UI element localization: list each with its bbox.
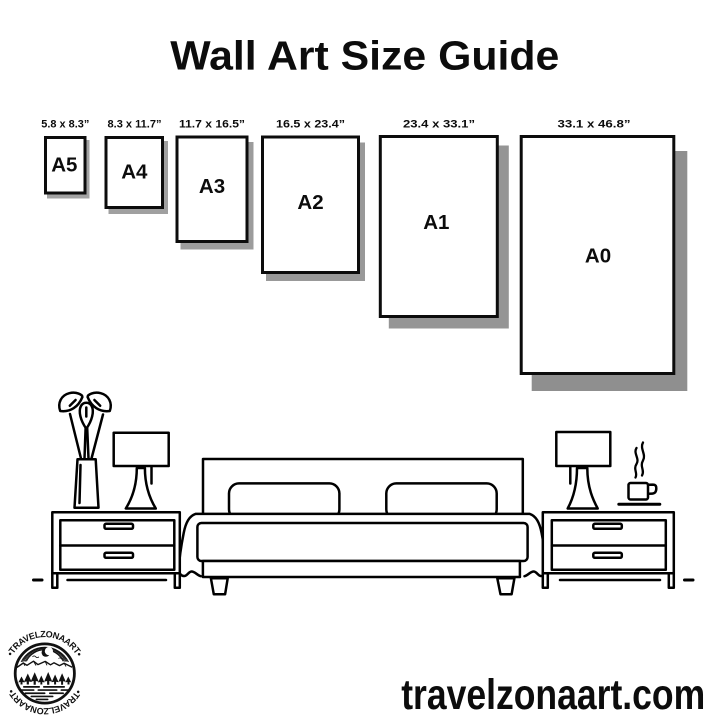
svg-text:A3: A3 (199, 175, 225, 198)
svg-text:23.4 x 33.1”: 23.4 x 33.1” (403, 119, 475, 131)
svg-text:A2: A2 (297, 191, 323, 214)
svg-text:travelzonaart.com: travelzonaart.com (401, 672, 705, 719)
svg-text:8.3 x 11.7”: 8.3 x 11.7” (108, 119, 162, 131)
svg-text:16.5 x 23.4”: 16.5 x 23.4” (276, 119, 345, 131)
svg-text:A4: A4 (121, 160, 148, 183)
svg-text:5.8 x 8.3”: 5.8 x 8.3” (41, 119, 89, 131)
svg-text:33.1 x 46.8”: 33.1 x 46.8” (558, 119, 631, 131)
svg-text:A1: A1 (423, 211, 449, 234)
svg-text:Wall Art Size Guide: Wall Art Size Guide (170, 32, 559, 78)
svg-text:A0: A0 (585, 245, 611, 268)
svg-text:11.7 x 16.5”: 11.7 x 16.5” (179, 119, 245, 131)
svg-text:A5: A5 (51, 154, 77, 177)
